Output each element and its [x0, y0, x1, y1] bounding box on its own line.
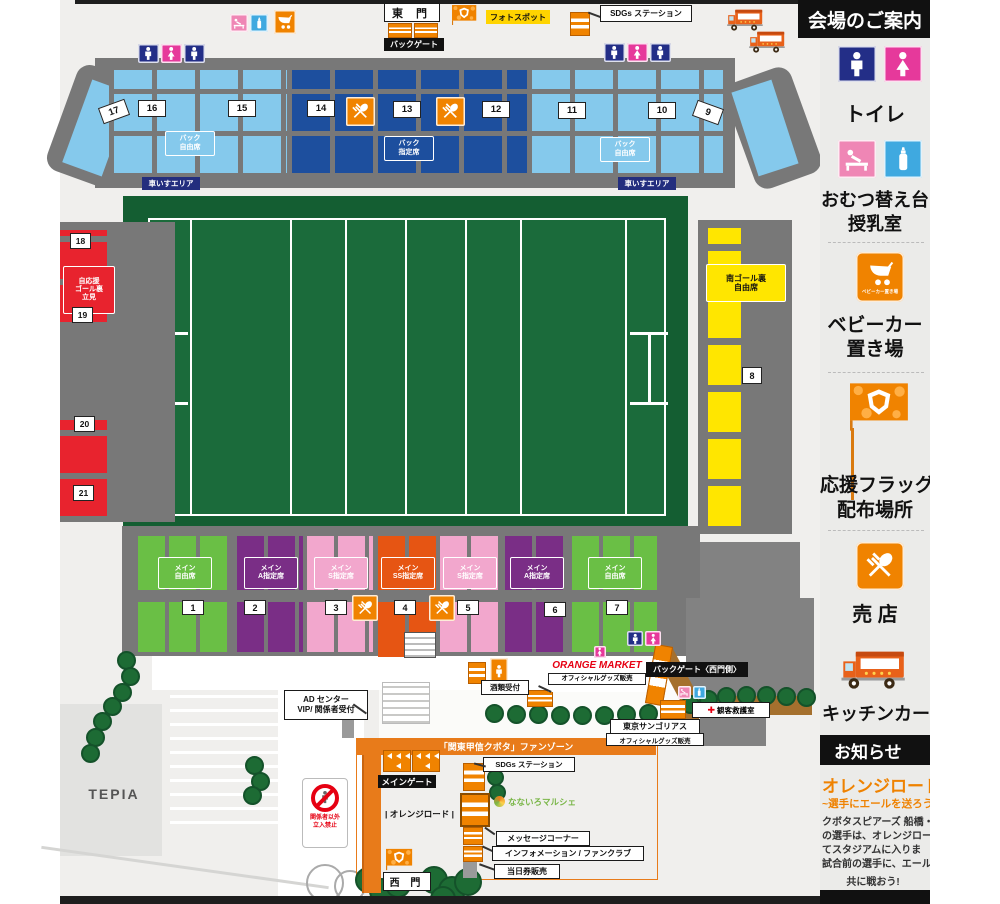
- pitch: [148, 218, 666, 516]
- gate-number: 2: [244, 600, 266, 615]
- toilet-male-icon: [138, 44, 159, 63]
- main-section-label: メイン A指定席: [244, 557, 298, 589]
- stairs: [382, 682, 430, 724]
- arrow-left-icon: [402, 753, 410, 759]
- toilet-female-icon: [645, 631, 661, 646]
- gate-number: 6: [544, 602, 566, 617]
- photo-spot-label: フォトスポット: [486, 10, 550, 24]
- main-section-label: メイン 自由席: [588, 557, 642, 589]
- gate-kiosk: [414, 23, 438, 38]
- orange-market-sub: オフィシャルグッズ販売: [548, 673, 646, 685]
- shop-icon: [856, 542, 904, 590]
- back-reserved-seats: [287, 70, 527, 178]
- road-kiosk: [463, 846, 483, 862]
- pitch-line: [345, 218, 347, 516]
- gate-number: 8: [742, 367, 762, 384]
- main-section-label: メイン SS指定席: [381, 557, 435, 589]
- flag-label-1: 応援フラッグ: [820, 470, 930, 497]
- ticket-booth: [463, 862, 477, 878]
- gate-number: 3: [325, 600, 347, 615]
- parking-stripes: [170, 692, 278, 824]
- main-stairs-notch: [404, 632, 436, 658]
- gate-number: 14: [307, 100, 335, 117]
- stroller-label-1: ベビーカー: [820, 310, 930, 337]
- backgate-west-label: バックゲート〈西門側〉: [646, 662, 748, 677]
- toilet-female-icon: [884, 46, 922, 82]
- flag-icon: [386, 848, 414, 871]
- diaper-label-2: 授乳室: [820, 210, 930, 236]
- arrow-left-icon: [413, 753, 421, 759]
- gate-number: 1: [182, 600, 204, 615]
- shop-icon: [436, 97, 465, 126]
- shop-icon: [346, 97, 375, 126]
- notice-header: お知らせ: [820, 735, 930, 765]
- arrow-left-icon: [384, 753, 392, 759]
- diaper-label-1: おむつ替え台: [820, 186, 930, 212]
- sungoliath-label: 東京サンゴリアス: [610, 719, 700, 734]
- tree-icon: [573, 706, 592, 725]
- road-kiosk: [463, 827, 483, 845]
- right-margin: [930, 0, 1000, 904]
- flag-icon: [452, 4, 478, 26]
- message-corner-label: メッセージコーナー: [496, 831, 590, 846]
- arrow-left-icon: [393, 753, 401, 759]
- orange-market-box: ORANGE MARKET オフィシャルグッズ販売: [548, 658, 646, 692]
- gate-number: 12: [482, 101, 510, 118]
- sdgs-kiosk: [570, 12, 590, 36]
- wheelchair-area-right: 車いすエリア: [618, 177, 676, 190]
- tree-icon: [777, 687, 796, 706]
- back-free-seats-left: [109, 70, 287, 178]
- gate-number: 15: [228, 100, 256, 117]
- tree-icon: [243, 786, 262, 805]
- goods-kiosk: [527, 690, 553, 707]
- orange-road-label: | オレンジロード |: [385, 808, 461, 821]
- tree-icon: [797, 688, 816, 707]
- toilet-male-icon: [184, 44, 205, 63]
- arrow-left-icon: [393, 763, 401, 769]
- stroller-icon: ベビーカー置き場: [856, 252, 904, 302]
- divider: [828, 242, 924, 243]
- gate-number: 4: [394, 600, 416, 615]
- toilet-male-icon: [838, 46, 876, 82]
- back-free-label-left: バック 自由席: [165, 131, 215, 156]
- goods-kiosk: [660, 700, 686, 719]
- back-free-label-right: バック 自由席: [600, 137, 650, 162]
- gate-number: 16: [138, 100, 166, 117]
- main-gate-label: メインゲート: [378, 775, 436, 788]
- tree-icon: [485, 704, 504, 723]
- main-section-label: メイン A指定席: [510, 557, 564, 589]
- road-kiosk: [463, 763, 485, 791]
- left-stand-seats-lower: [60, 420, 166, 516]
- day-ticket-label: 当日券販売: [494, 864, 560, 879]
- pitch-line: [405, 218, 407, 516]
- sidebar: トイレ おむつ替え台 授乳室 ベビーカー置き場 ベビーカー 置き場 応援フラッグ…: [820, 0, 930, 904]
- information-label: インフォメーション / ファンクラブ: [492, 846, 644, 861]
- notice-close: 共に戦おう!: [820, 873, 926, 888]
- stroller-label-2: 置き場: [820, 334, 930, 361]
- tree-icon: [81, 744, 100, 763]
- tree-icon: [507, 705, 526, 724]
- toilet-female-icon: [161, 44, 182, 63]
- west-gate-label: 西 門: [383, 872, 431, 891]
- map-bottom-border: [60, 896, 820, 904]
- toilet-male-icon: [604, 43, 625, 62]
- arrow-left-icon: [431, 753, 439, 759]
- shop-icon: [429, 595, 455, 621]
- tree-icon: [551, 706, 570, 725]
- orange-market-title: ORANGE MARKET: [548, 658, 646, 673]
- tree-icon: [529, 705, 548, 724]
- wheelchair-area-left: 車いすエリア: [142, 177, 200, 190]
- venue-map-page: TEPIA バック 自由席 バック 指定席 バック 自由席 車いすエリア 車いす…: [0, 0, 1000, 904]
- pitch-line: [190, 218, 192, 516]
- pitch-line: [625, 218, 627, 516]
- kitchen-car-icon: [748, 28, 788, 55]
- toilet-female-icon: [594, 646, 606, 658]
- gate-number: 5: [457, 600, 479, 615]
- sungoliath-sub-label: オフィシャルグッズ販売: [606, 733, 704, 746]
- nursing-icon: [693, 686, 706, 699]
- back-gate-label: バックゲート: [384, 38, 444, 51]
- pitch-line: [290, 218, 292, 516]
- arrow-left-icon: [422, 753, 430, 759]
- toilet-male-icon: [650, 43, 671, 62]
- gate-number: 21: [73, 485, 94, 501]
- goalpost-right: [648, 332, 651, 405]
- kitchen-label: キッチンカー: [820, 700, 930, 726]
- right-stand-label: 南ゴール裏 自由席: [706, 264, 786, 302]
- sidebar-title-bar: 会場のご案内: [798, 0, 930, 38]
- toilet-male-icon: [627, 631, 643, 646]
- sdgs-station-label: SDGs ステーション: [600, 5, 692, 22]
- building: [700, 542, 800, 600]
- nursing-icon: [250, 14, 268, 32]
- gate-number: 19: [72, 307, 93, 323]
- stroller-icon-caption: ベビーカー置き場: [862, 289, 898, 295]
- diaper-icon: [678, 686, 691, 699]
- road-kiosk: [460, 793, 490, 827]
- gate-number: 18: [70, 233, 91, 249]
- ad-center-line1: AD センター: [303, 695, 349, 705]
- no-entry-sign: 関係者以外 立入禁止: [302, 778, 348, 848]
- divider: [828, 530, 924, 531]
- flag-label-2: 配布場所: [820, 495, 930, 522]
- diaper-icon: [838, 140, 876, 178]
- gate-kiosk: [388, 23, 412, 38]
- gate-number: 7: [606, 600, 628, 615]
- stroller-icon: [274, 10, 296, 34]
- first-aid-label: 観客救護室: [717, 705, 755, 716]
- tepia-label: TEPIA: [74, 786, 154, 802]
- notice-body: クボタスピアーズ 船橋・東 の選手は、オレンジロード てスタジアムに入りま 試合…: [822, 816, 930, 872]
- kitchen-car-icon: [840, 645, 910, 693]
- ad-center-line2: VIP/ 関係者受付: [297, 705, 354, 715]
- divider: [828, 372, 924, 373]
- orange-road: [362, 740, 381, 893]
- toilet-label: トイレ: [820, 98, 930, 127]
- pitch-line: [520, 218, 522, 516]
- sake-reception-label: 酒類受付: [481, 680, 529, 695]
- sidebar-bottom-bar: [820, 890, 930, 904]
- back-reserved-label: バック 指定席: [384, 136, 434, 161]
- maingate-kiosk: [412, 750, 440, 772]
- notice-subtitle: ~選手にエールを送ろう~: [822, 796, 930, 811]
- main-section-label: メイン 自由席: [158, 557, 212, 589]
- gate-number: 11: [558, 102, 586, 119]
- red-cross-icon: ✚: [707, 706, 715, 715]
- no-entry-label: 関係者以外 立入禁止: [303, 814, 347, 831]
- gate-number: 20: [74, 416, 95, 432]
- toilet-female-icon: [627, 43, 648, 62]
- main-section-label: メイン S指定席: [314, 557, 368, 589]
- shop-icon: [352, 595, 378, 621]
- nursing-icon: [884, 140, 922, 178]
- shop-label: 売 店: [820, 598, 930, 627]
- no-entry-icon: [311, 784, 339, 812]
- diaper-icon: [230, 14, 248, 32]
- pitch-line: [465, 218, 467, 516]
- east-gate-label: 東 門: [384, 3, 440, 22]
- arrow-left-icon: [422, 763, 430, 769]
- map-top-border: [75, 0, 810, 4]
- sdgs-station-label-bottom: SDGs ステーション: [483, 757, 575, 772]
- first-aid-tag: ✚ 観客救護室: [692, 702, 770, 718]
- gate-number: 13: [393, 101, 421, 118]
- gate-number: 10: [648, 102, 676, 119]
- nanairo-icon: [494, 796, 505, 807]
- tepia-building: [60, 704, 162, 856]
- maingate-kiosk: [383, 750, 411, 772]
- main-section-label: メイン S指定席: [443, 557, 497, 589]
- nanairo-label: なないろマルシェ: [508, 796, 576, 808]
- notice-title: オレンジロード: [822, 772, 930, 797]
- flag-icon: [850, 382, 912, 432]
